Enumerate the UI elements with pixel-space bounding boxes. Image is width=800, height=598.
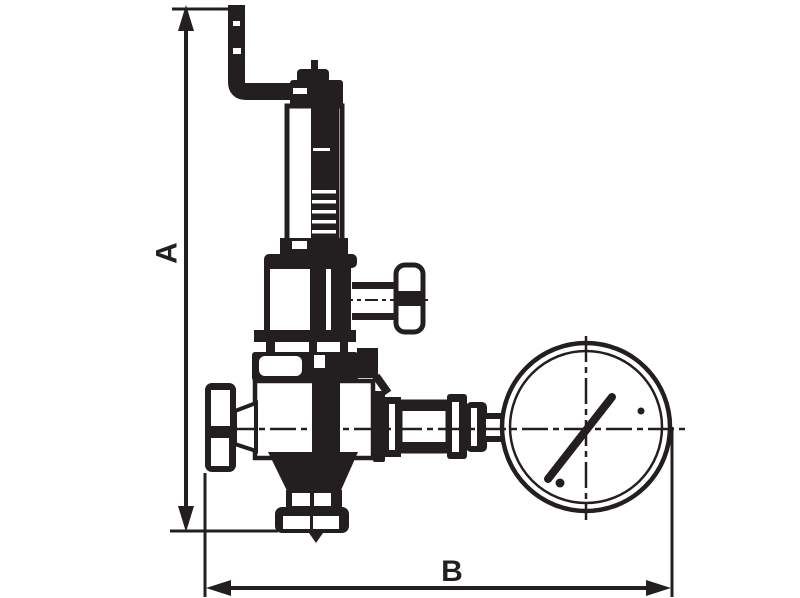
collar-slit — [292, 241, 307, 249]
nut-facet — [211, 438, 229, 466]
adjusting-cap — [290, 60, 343, 108]
spring-housing — [264, 106, 357, 268]
flange-window — [283, 516, 310, 529]
dimension-a-label: A — [151, 242, 184, 264]
neck-window — [292, 493, 310, 506]
nut-slit — [389, 404, 395, 450]
outlet-taper — [376, 376, 388, 393]
t-handle — [340, 265, 432, 332]
outlet-block — [357, 348, 378, 378]
nut-facet — [211, 390, 230, 426]
valve-body — [255, 381, 373, 458]
handle-stem-bottom — [352, 313, 398, 320]
union-slit — [452, 402, 459, 452]
arrowhead-right-icon — [646, 580, 671, 596]
tube-collar — [280, 238, 348, 256]
dimension-b-label: B — [441, 555, 463, 588]
bottom-tip — [309, 533, 323, 543]
adapter-slit — [471, 408, 477, 446]
base-assembly — [268, 452, 358, 543]
neck-post — [266, 338, 275, 354]
nipple-bottom-edge — [400, 442, 448, 451]
stem-section — [310, 266, 326, 336]
pipe-mark — [233, 21, 240, 26]
handle-stem-top — [352, 282, 398, 289]
arrowhead-left-icon — [206, 580, 231, 596]
drawing-canvas: A B — [0, 0, 800, 598]
neck-post — [340, 338, 348, 354]
neck-post — [309, 338, 317, 354]
connection-plate — [373, 391, 385, 462]
band-window — [259, 356, 302, 376]
bonnet — [254, 266, 356, 354]
inlet-neck — [235, 403, 256, 451]
cap-slit — [293, 88, 307, 94]
flange-window — [313, 516, 339, 529]
gauge-pivot-dot — [556, 479, 565, 488]
pipe-mark — [233, 48, 241, 54]
body-stem-section — [312, 381, 340, 458]
gauge-face-dot — [638, 408, 645, 415]
gauge-connection — [373, 391, 505, 462]
handle-hub — [396, 291, 423, 306]
arrowhead-down-icon — [178, 506, 194, 532]
valve-technical-drawing: A B — [0, 0, 800, 598]
nipple-top-edge — [400, 402, 448, 411]
neck-window — [314, 493, 331, 506]
inlet-connector — [205, 383, 256, 472]
pipe-elbow — [233, 5, 303, 92]
band-window — [314, 355, 325, 368]
